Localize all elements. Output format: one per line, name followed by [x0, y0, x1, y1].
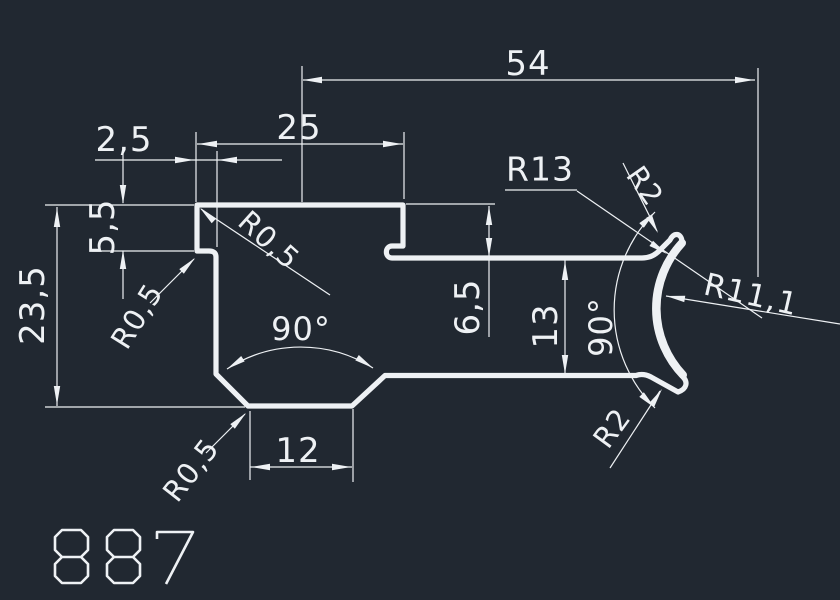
- dim-2-5-label: 2,5: [95, 120, 152, 160]
- radius-r13-label: R13: [506, 150, 574, 189]
- radius-r2-bottom-label: R2: [586, 402, 637, 455]
- dim-arrow: [303, 77, 322, 83]
- dim-25-label: 25: [276, 108, 321, 148]
- dim-arrow: [486, 238, 492, 257]
- dim-arrow: [230, 411, 248, 429]
- digit-8-first: [55, 530, 88, 583]
- radius-r0-5-top-label: R0,5: [232, 204, 307, 276]
- angle-90-bottom-arc: [227, 347, 373, 369]
- dim-13-label: 13: [526, 303, 566, 348]
- digit-8-second: [107, 530, 140, 583]
- dim-23-5-label: 23,5: [13, 265, 53, 345]
- dim-arrow: [665, 293, 685, 302]
- radius-r0-5-left-label: R0,5: [104, 277, 170, 355]
- dim-12-label: 12: [275, 431, 320, 471]
- dim-arrow: [649, 387, 665, 406]
- dim-arrow: [54, 208, 60, 227]
- dim-arrow: [332, 464, 351, 470]
- dim-arrow: [175, 157, 194, 163]
- angle-90-bottom-label: 90°: [271, 310, 331, 348]
- digit-7: [157, 532, 193, 584]
- cad-viewport: 54252,55,523,56,51390°90°12R13R11,1R2R2R…: [0, 0, 840, 600]
- dim-6-5-label: 6,5: [448, 278, 488, 335]
- dim-arrow: [562, 355, 568, 374]
- dim-5-5-label: 5,5: [83, 198, 123, 255]
- dim-54-label: 54: [505, 44, 550, 84]
- dim-arrow: [251, 464, 270, 470]
- radius-r11-1-label: R11,1: [700, 267, 801, 324]
- dim-arrow: [562, 261, 568, 280]
- profile-concave-arc: [657, 243, 683, 375]
- dim-arrow: [486, 206, 492, 225]
- dim-arrow: [355, 355, 374, 371]
- angle-90-right-label: 90°: [582, 297, 620, 357]
- dim-arrow: [218, 157, 237, 163]
- dim-arrow: [54, 386, 60, 405]
- drawing-number-887: [55, 530, 193, 584]
- dim-arrow: [383, 141, 402, 147]
- dim-arrow: [198, 141, 217, 147]
- dim-arrow: [179, 256, 197, 274]
- dim-arrow: [198, 206, 216, 224]
- dim-arrow: [225, 356, 244, 372]
- dim-arrow: [735, 77, 754, 83]
- profile-drawing-887: 54252,55,523,56,51390°90°12R13R11,1R2R2R…: [0, 0, 840, 600]
- dim-arrow: [646, 215, 661, 235]
- radius-r2-top-label: R2: [619, 160, 670, 213]
